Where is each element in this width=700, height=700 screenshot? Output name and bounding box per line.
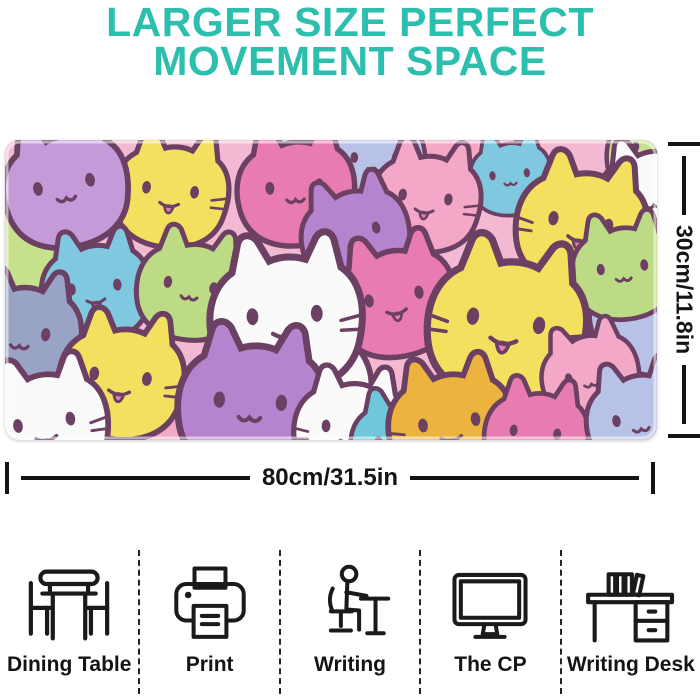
dimension-line	[410, 476, 639, 480]
title-line-1: LARGER SIZE PERFECT	[0, 3, 700, 42]
writing-icon	[304, 562, 396, 648]
dimension-line	[682, 156, 686, 215]
height-value: 30cm/11.8in	[671, 225, 698, 354]
dimension-endcap	[668, 142, 700, 146]
writing-desk-icon	[579, 562, 683, 648]
features-row: Dining Table Print	[0, 548, 700, 696]
dimension-endcap	[668, 434, 700, 438]
feature-label: Dining Table	[7, 653, 131, 677]
dining-table-icon	[16, 562, 122, 648]
dimension-width: 80cm/31.5in	[5, 462, 655, 494]
feature-the-cp: The CP	[421, 548, 559, 696]
dimension-endcap	[651, 462, 655, 494]
print-icon	[164, 562, 256, 648]
dimension-line	[21, 476, 250, 480]
feature-dining-table: Dining Table	[0, 548, 138, 696]
page-title: LARGER SIZE PERFECT MOVEMENT SPACE	[0, 3, 700, 81]
mousepad-image	[5, 140, 657, 440]
feature-label: Writing	[314, 653, 386, 677]
dimension-endcap	[5, 462, 9, 494]
feature-print: Print	[140, 548, 278, 696]
title-line-2: MOVEMENT SPACE	[0, 42, 700, 81]
feature-writing-desk: Writing Desk	[562, 548, 700, 696]
dimension-height: 30cm/11.8in	[667, 142, 700, 438]
feature-label: The CP	[454, 653, 526, 677]
computer-monitor-icon	[442, 562, 538, 648]
width-value: 80cm/31.5in	[262, 464, 398, 492]
feature-label: Print	[186, 653, 234, 677]
dimension-line	[682, 365, 686, 424]
feature-label: Writing Desk	[567, 653, 695, 677]
cat-pattern	[5, 140, 657, 440]
product-image-page: LARGER SIZE PERFECT MOVEMENT SPACE	[0, 0, 700, 700]
feature-writing: Writing	[281, 548, 419, 696]
